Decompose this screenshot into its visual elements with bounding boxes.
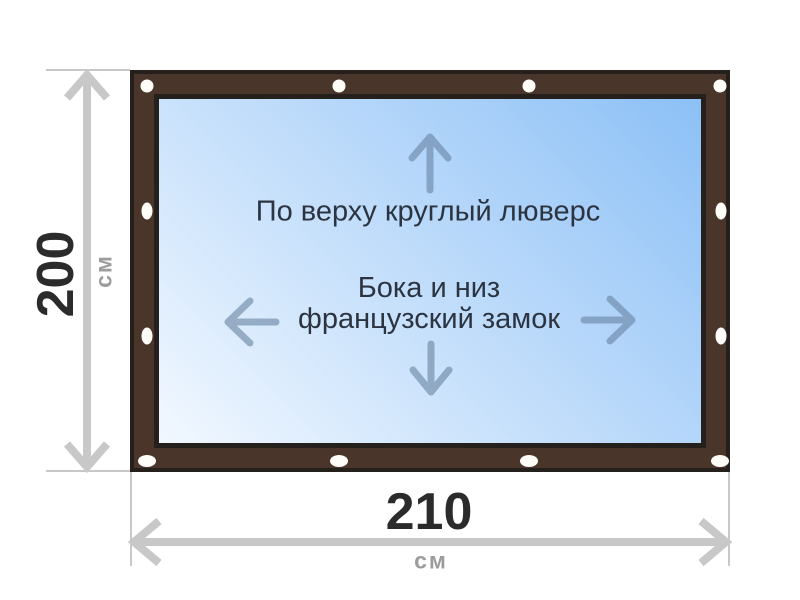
- grommet-icon: [716, 328, 727, 345]
- top-edge-label: По верху круглый люверс: [256, 197, 601, 228]
- grommet-icon: [138, 455, 156, 467]
- sides-label-line1: Бока и низ: [298, 273, 560, 304]
- width-dimension-arrowhead-right: [701, 521, 726, 563]
- width-dimension-arrowhead-left: [134, 521, 159, 563]
- sides-label-line2: французский замок: [298, 304, 560, 335]
- grommet-icon: [520, 455, 538, 467]
- grommet-icon: [142, 328, 153, 345]
- grommet-icon: [716, 203, 727, 220]
- sides-label: Бока и низ французский замок: [298, 273, 560, 335]
- grommet-icon: [523, 80, 536, 93]
- grommet-icon: [141, 80, 154, 93]
- height-dimension-arrowhead-top: [67, 75, 107, 98]
- height-dimension-value: 200: [26, 231, 86, 318]
- grommet-icon: [711, 455, 729, 467]
- width-dimension-value: 210: [386, 482, 473, 542]
- grommet-icon: [714, 80, 727, 93]
- tarp-product-diagram: По верху круглый люверс Бока и низ франц…: [0, 0, 800, 600]
- grommet-icon: [330, 455, 348, 467]
- width-dimension-unit: см: [414, 548, 448, 575]
- grommet-icon: [333, 80, 346, 93]
- tarp-canvas: [154, 94, 706, 448]
- height-dimension-unit: см: [91, 254, 118, 288]
- grommet-icon: [142, 203, 153, 220]
- tarp-frame: [130, 70, 730, 472]
- height-dimension-arrowhead-bottom: [67, 444, 107, 467]
